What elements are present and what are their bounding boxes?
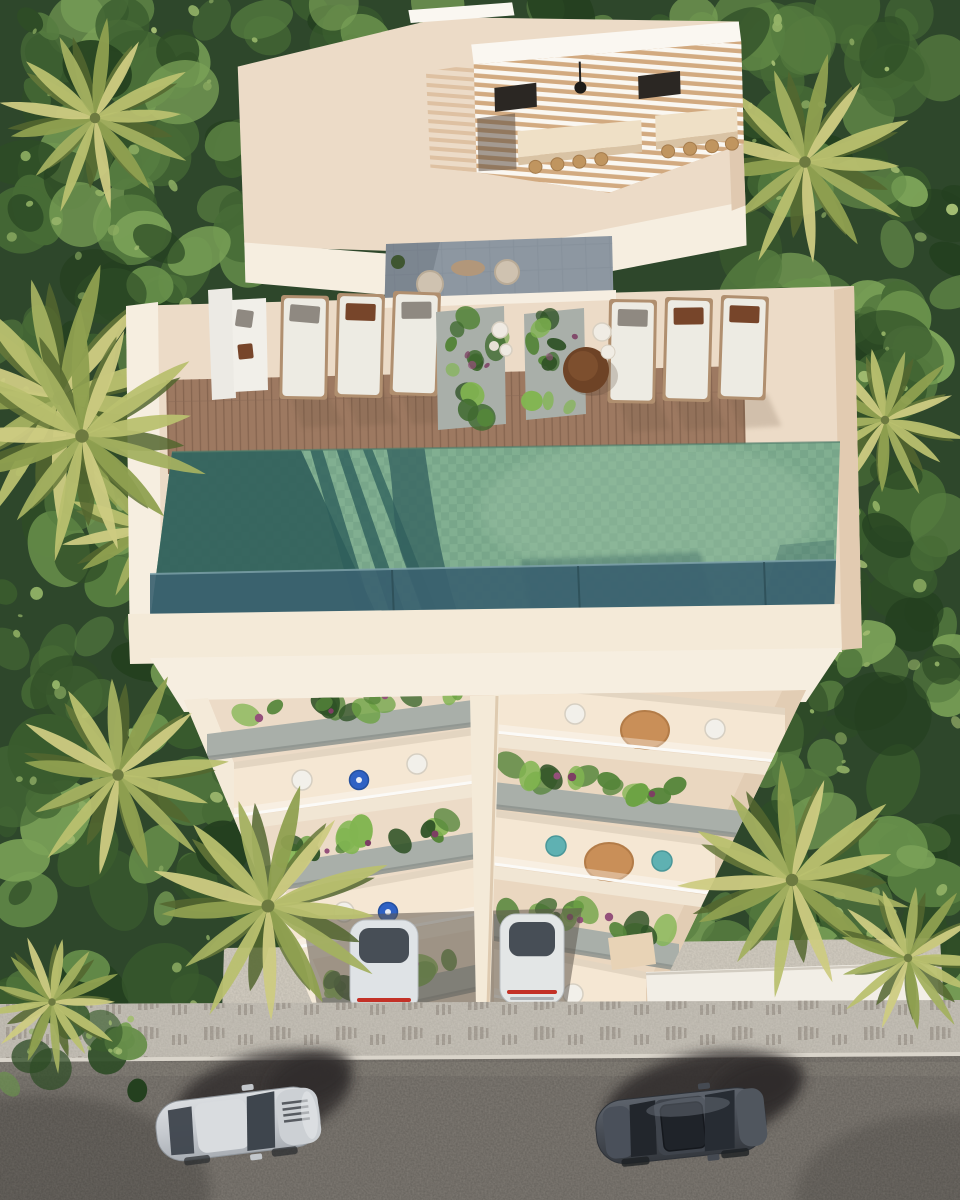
bar-stool <box>551 158 564 171</box>
bar-stool <box>683 142 696 155</box>
ceramic-vase <box>492 322 508 338</box>
tv-screen-left <box>494 83 537 112</box>
rear-bumper <box>510 997 554 1000</box>
table-center <box>356 777 362 783</box>
sofa-pillow-brown <box>237 343 253 359</box>
side-table <box>601 345 615 359</box>
balcony-flower <box>605 913 613 921</box>
bar-stool <box>529 160 542 173</box>
tail-light-strip <box>507 990 557 994</box>
bar-stool <box>725 137 738 150</box>
balcony-flower <box>432 831 439 838</box>
car-roof <box>193 1098 251 1154</box>
ceramic-vase <box>489 341 499 351</box>
lounger-pillow <box>345 303 376 321</box>
balcony-flower <box>553 772 560 779</box>
corner-sofa <box>208 288 268 400</box>
sofa-pillow-gray <box>235 309 254 328</box>
side-mirror <box>698 1082 711 1089</box>
balcony-flower <box>568 773 576 781</box>
render-canvas <box>0 0 960 1200</box>
side-mirror <box>707 1154 720 1161</box>
balcony-flower <box>255 714 263 722</box>
lounger-pillow <box>674 307 704 324</box>
patio-chair-teal <box>546 836 566 856</box>
patio-chair-white <box>705 719 725 739</box>
balcony-flower <box>324 848 329 853</box>
lounger-pillow <box>729 305 760 323</box>
terrace-coffee-table <box>451 260 485 276</box>
parked-car-glass <box>509 922 555 956</box>
patio-chair-white <box>407 754 427 774</box>
terrace-plant-pot <box>391 255 405 269</box>
tail-light-strip <box>357 998 411 1002</box>
bar-stool <box>595 152 608 165</box>
bar-stool <box>705 140 718 153</box>
bar-stool <box>661 145 674 158</box>
bar-recess-dark <box>477 113 516 171</box>
pendant-lamp-cord <box>580 62 581 84</box>
balcony-flower <box>649 791 655 797</box>
bar-stool <box>573 155 586 168</box>
patio-chair-white <box>565 704 585 724</box>
patio-chair-white <box>292 770 312 790</box>
terrace-armchair <box>495 260 519 284</box>
balcony-flower <box>365 840 371 846</box>
brown-pouf-top <box>568 351 598 381</box>
pergola-shadow-stripes <box>426 64 477 173</box>
street <box>0 1000 960 1200</box>
sofa-back <box>208 288 236 400</box>
balcony-flower <box>328 708 333 713</box>
side-table <box>593 323 611 341</box>
ceramic-vase <box>500 344 512 356</box>
infinity-pool <box>128 440 842 712</box>
lounger-pillow <box>617 309 648 327</box>
parked-car-glass <box>359 928 409 963</box>
garden-bench <box>608 932 656 970</box>
parked-car <box>500 914 564 1004</box>
lounger-pillow <box>401 302 431 319</box>
patio-chair-teal <box>652 851 672 871</box>
lounger-pillow <box>289 304 320 323</box>
